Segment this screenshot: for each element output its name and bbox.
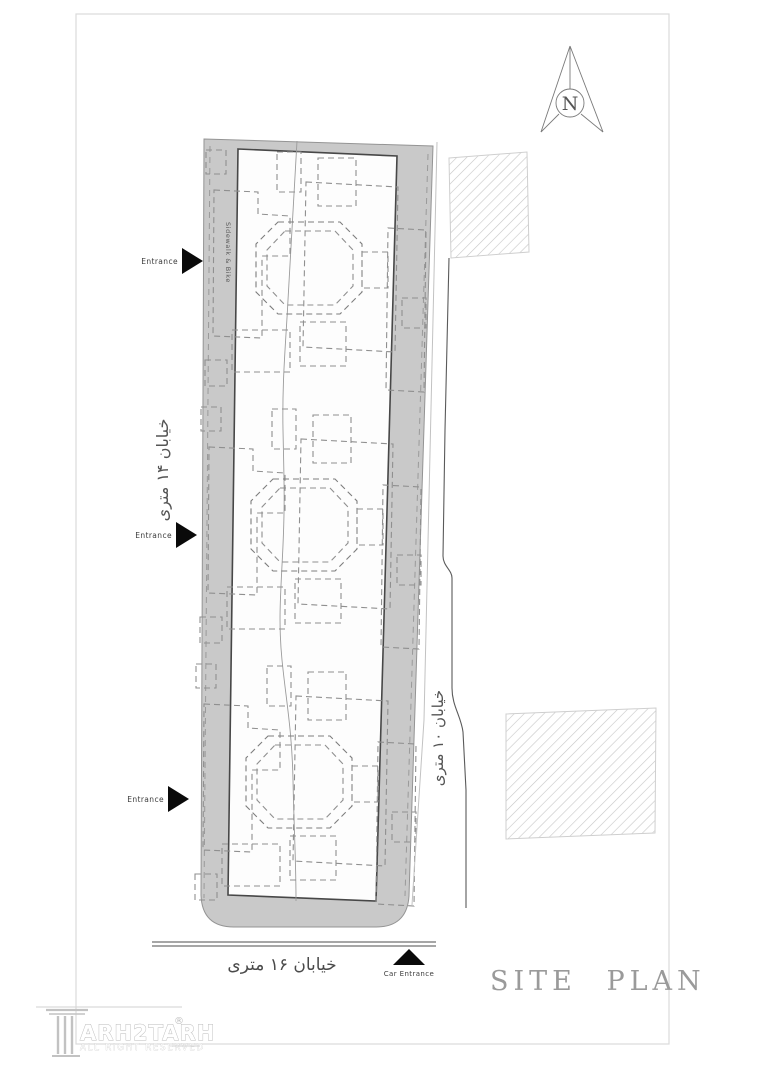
entrance-label-3: Entrance [127,795,164,804]
car-entrance-label: Car Entrance [384,970,434,978]
sidewalk-bike-label: Sidewalk & Bike [224,222,232,283]
site-plan-drawing: N Entrance Entrance Entrance Car En [0,0,771,1080]
drawing-title: SITE PLAN [490,966,706,997]
street-label-left: خیابان ۱۴ متری [153,419,173,522]
street-label-bottom: خیابان ۱۶ متری [227,955,336,975]
site-parcel-outline [228,149,397,901]
registered-mark-icon: ® [174,1016,184,1027]
hatched-parcel-bottom [506,708,656,839]
street-label-right: خیابان ۱۰ متری [429,690,447,786]
drawing-sheet: N Entrance Entrance Entrance Car En [0,0,771,1080]
compass-north-label: N [562,93,579,115]
logo-tagline: ALL RIGHT RESERVED [80,1043,205,1053]
logo-name: ARH2TARH [80,1021,215,1045]
entrance-label-1: Entrance [141,257,178,266]
hatched-parcel-top [449,152,529,258]
entrance-label-2: Entrance [135,531,172,540]
